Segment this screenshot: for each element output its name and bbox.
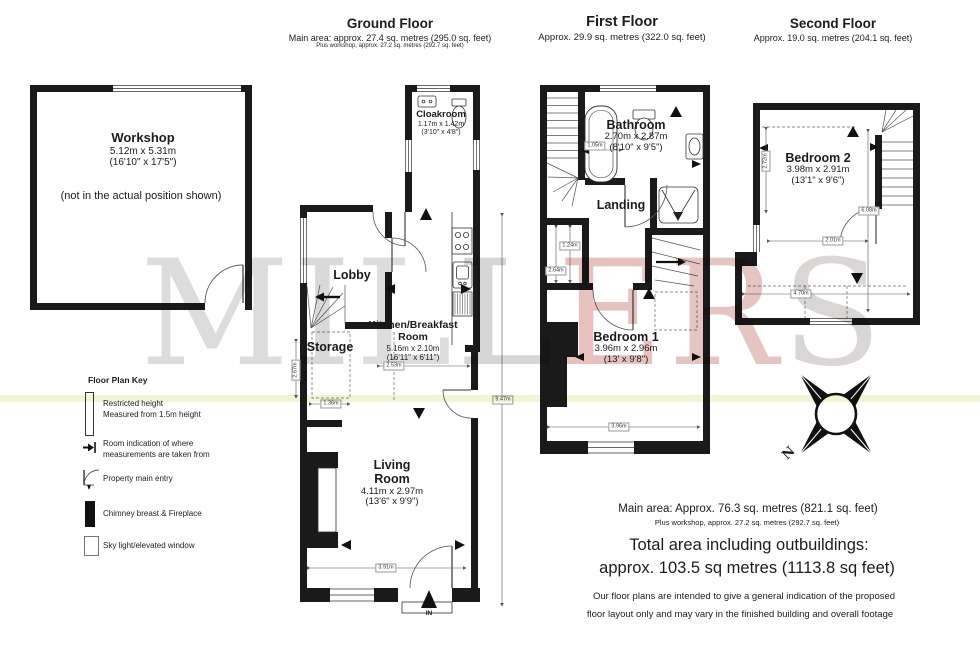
floorplan-page: M I L L E R S Ground Floor Main area: ap…	[0, 0, 980, 652]
second-walls	[735, 103, 920, 325]
dim-label: 1.24m	[559, 242, 580, 251]
workshop-window-icon	[113, 85, 241, 92]
summary-total-line1: Total area including outbuildings:	[629, 536, 868, 555]
room-size-m: 5.12m x 5.31m	[109, 146, 176, 157]
second-measure-markers	[759, 126, 879, 284]
dim-label: 2.67m	[292, 359, 301, 380]
skylight-icon	[84, 536, 99, 556]
room-size-ft: (13' x 9'8")	[593, 355, 658, 366]
dim-label: 4.70m	[790, 290, 811, 299]
first-restricted-dashes	[655, 292, 697, 330]
ground-floor-header: Ground Floor Main area: approx. 27.4 sq.…	[289, 16, 492, 49]
room-size-m: 1.17m x 1.42m	[416, 121, 466, 129]
second-stairs	[882, 110, 913, 205]
dim-label: 2.64m	[545, 267, 566, 276]
room-name: Lobby	[333, 268, 371, 282]
basin-icon	[686, 134, 703, 159]
bedroom1-label: Bedroom 1 3.96m x 2.96m (13' x 9'8")	[593, 330, 658, 366]
measure-point-icon	[82, 440, 98, 455]
key-item-label: Sky light/elevated window	[103, 541, 195, 552]
first-stairs-up	[547, 98, 578, 206]
living-room-label: Living Room 4.11m x 2.97m (13'6" x 9'9")	[360, 458, 424, 508]
dim-label: 2.53m	[383, 362, 404, 371]
landing-label: Landing	[597, 198, 646, 212]
dim-label: 6.08m	[858, 207, 879, 216]
ground-floor-area: Main area: approx. 27.4 sq. metres (295.…	[289, 33, 492, 43]
room-name: Workshop	[109, 131, 176, 146]
room-name: Living Room	[360, 458, 424, 487]
summary-workshop-area: Plus workshop, approx. 27.2 sq. metres (…	[655, 518, 839, 527]
dim-label: 1.05m	[584, 142, 605, 151]
key-item-label: Chimney breast & Fireplace	[103, 509, 202, 520]
first-floor-title: First Floor	[538, 14, 705, 30]
key-item-label: Restricted height Measured from 1.5m hei…	[103, 399, 201, 420]
room-name: Storage	[307, 340, 354, 354]
room-size-ft: (16'11" x 6'11")	[361, 353, 465, 362]
dim-label: 3.91m	[375, 564, 396, 573]
yellow-highlight-line	[0, 395, 980, 402]
second-floor-header: Second Floor Approx. 19.0 sq. metres (20…	[754, 16, 913, 43]
room-size-ft: (8'10" x 9'5")	[605, 143, 668, 154]
room-size-ft: (16'10" x 17'5")	[109, 157, 176, 168]
dim-label: 3.96m	[608, 423, 629, 432]
room-name: Landing	[597, 198, 646, 212]
room-size-ft: (13'1" x 9'6")	[785, 176, 850, 187]
ground-stairs	[307, 285, 345, 328]
second-floor-area: Approx. 19.0 sq. metres (204.1 sq. feet)	[754, 33, 913, 43]
shower-icon	[659, 187, 698, 223]
dim-label: 2.72m	[762, 150, 771, 171]
ground-floor-area-2: Plus workshop, approx. 27.2 sq. metres (…	[289, 43, 492, 49]
disclaimer-line1: Our floor plans are intended to give a g…	[593, 591, 895, 602]
room-name: Cloakroom	[416, 110, 466, 121]
room-size-m: 5.16m x 2.10m	[361, 344, 465, 353]
summary-total-line2: approx. 103.5 sq metres (1113.8 sq feet)	[599, 559, 895, 578]
room-name: Kitchen/Breakfast Room	[361, 320, 465, 344]
room-name: Bedroom 1	[593, 330, 658, 344]
second-floor-plan-drawing	[728, 96, 928, 336]
second-floor-title: Second Floor	[754, 16, 913, 31]
entry-in-label: IN	[426, 610, 433, 617]
disclaimer-line2: floor layout only and may vary in the fi…	[587, 609, 893, 620]
ground-floor-title: Ground Floor	[289, 16, 492, 31]
workshop-label: Workshop 5.12m x 5.31m (16'10" x 17'5")	[109, 131, 176, 169]
room-name: Bedroom 2	[785, 151, 850, 165]
room-name: Bathroom	[605, 118, 668, 132]
lobby-label: Lobby	[333, 268, 371, 282]
first-floor-area: Approx. 29.9 sq. metres (322.0 sq. feet)	[538, 32, 705, 43]
key-item-label: Property main entry	[103, 474, 173, 485]
bathroom-label: Bathroom 2.70m x 2.87m (8'10" x 9'5")	[605, 118, 668, 154]
cloakroom-label: Cloakroom 1.17m x 1.42m (3'10" x 4'8")	[416, 110, 466, 137]
bedroom2-label: Bedroom 2 3.98m x 2.91m (13'1" x 9'6")	[785, 151, 850, 187]
main-entry-icon	[82, 468, 101, 492]
fireplace-recess-icon	[318, 468, 336, 532]
room-size-ft: (13'6" x 9'9")	[360, 497, 424, 508]
dim-label: 2.01m	[822, 237, 843, 246]
storage-label: Storage	[307, 340, 354, 354]
workshop-door-icon	[205, 265, 245, 310]
kitchen-label: Kitchen/Breakfast Room 5.16m x 2.10m (16…	[361, 320, 465, 362]
summary-main-area: Main area: Approx. 76.3 sq. metres (821.…	[618, 503, 878, 515]
workshop-note: (not in the actual position shown)	[61, 190, 222, 203]
first-floor-header: First Floor Approx. 29.9 sq. metres (322…	[538, 14, 705, 43]
room-size-ft: (3'10" x 4'8")	[416, 129, 466, 137]
key-item-label: Room indication of where measurements ar…	[103, 439, 210, 460]
key-title: Floor Plan Key	[88, 375, 148, 385]
chimney-icon	[85, 501, 95, 527]
